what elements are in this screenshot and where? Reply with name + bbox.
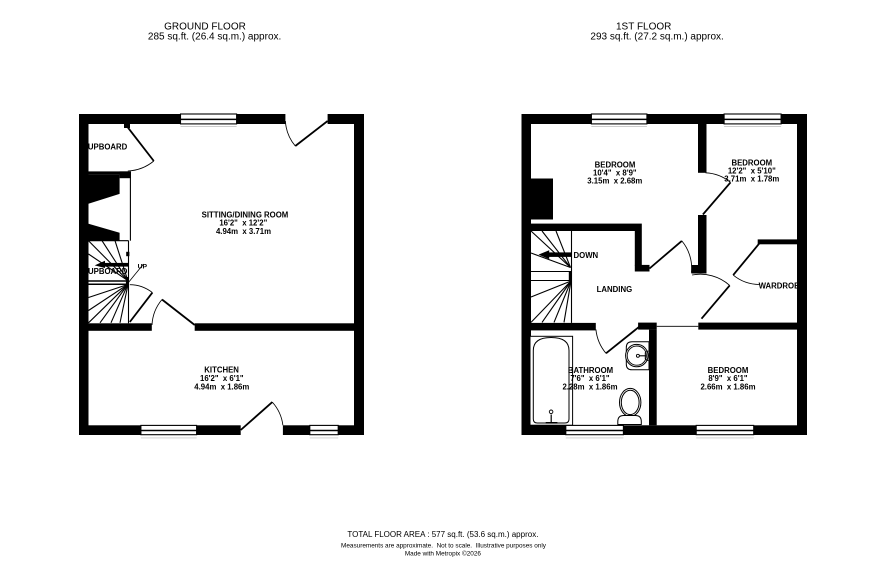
- svg-text:2.66m x 1.86m: 2.66m x 1.86m: [700, 382, 755, 391]
- svg-text:UPBOARD: UPBOARD: [88, 143, 128, 152]
- svg-text:2.28m x 1.86m: 2.28m x 1.86m: [562, 382, 617, 391]
- svg-text:UPBOARD: UPBOARD: [88, 267, 128, 276]
- svg-text:285 sq.ft. (26.4 sq.m.) approx: 285 sq.ft. (26.4 sq.m.) approx.: [148, 31, 281, 42]
- svg-text:Measurements are approximate.: Measurements are approximate. Not to sca…: [341, 542, 547, 549]
- svg-text:293 sq.ft. (27.2 sq.m.) approx: 293 sq.ft. (27.2 sq.m.) approx.: [590, 31, 723, 42]
- svg-text:3.15m x 2.68m: 3.15m x 2.68m: [587, 177, 642, 186]
- svg-text:4.94m x 1.86m: 4.94m x 1.86m: [194, 382, 249, 391]
- svg-text:DOWN: DOWN: [574, 251, 599, 260]
- svg-text:TOTAL FLOOR AREA : 577 sq.ft.: TOTAL FLOOR AREA : 577 sq.ft. (53.6 sq.m…: [347, 530, 538, 539]
- svg-text:LANDING: LANDING: [597, 285, 633, 294]
- svg-text:WARDROBE: WARDROBE: [759, 282, 805, 291]
- svg-text:4.94m x 3.71m: 4.94m x 3.71m: [216, 227, 271, 236]
- svg-text:Made with Metropix ©2026: Made with Metropix ©2026: [405, 549, 482, 557]
- svg-text:UP: UP: [138, 263, 148, 270]
- svg-text:3.71m x 1.78m: 3.71m x 1.78m: [724, 174, 779, 183]
